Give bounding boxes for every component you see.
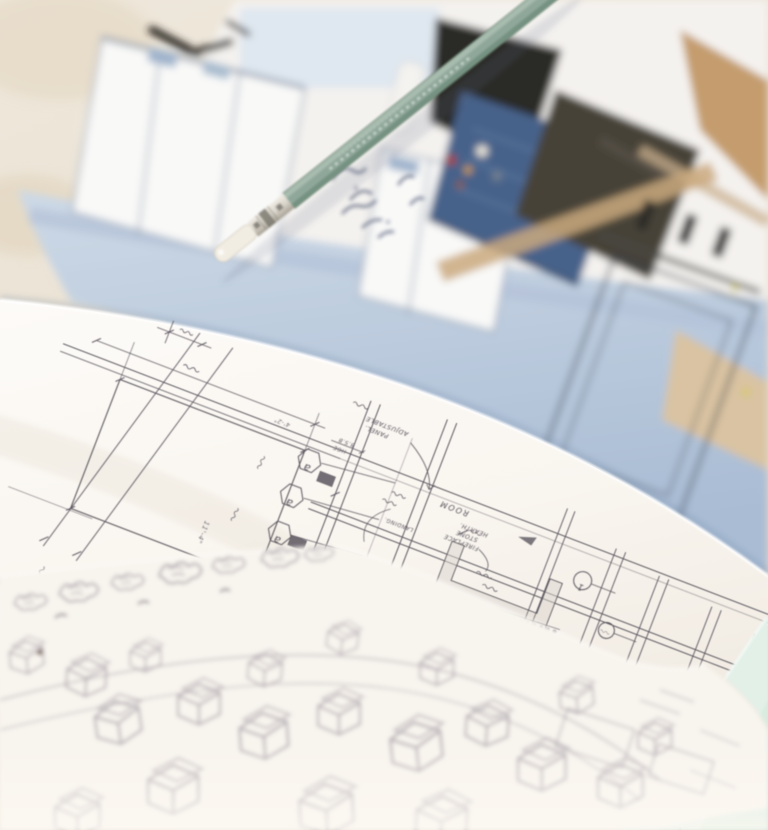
- photo-recreation: Architectural sketches, printed photogra…: [0, 0, 768, 830]
- desk-photo: Architectural sketches, printed photogra…: [0, 0, 768, 830]
- foreground-fade: [0, 740, 768, 830]
